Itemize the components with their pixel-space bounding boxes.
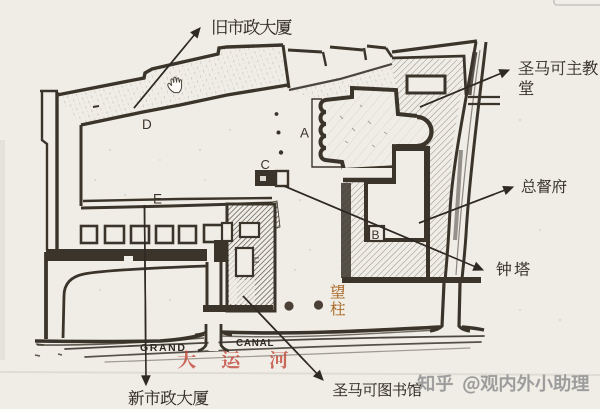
svg-text:F: F (252, 255, 259, 269)
svg-text:CANAL: CANAL (236, 338, 274, 349)
svg-text:C: C (261, 157, 270, 172)
svg-text:A: A (300, 126, 309, 141)
svg-text:E: E (153, 192, 162, 207)
svg-text:B: B (372, 228, 380, 242)
svg-text:GRAND: GRAND (140, 342, 187, 354)
svg-text:D: D (142, 117, 152, 132)
